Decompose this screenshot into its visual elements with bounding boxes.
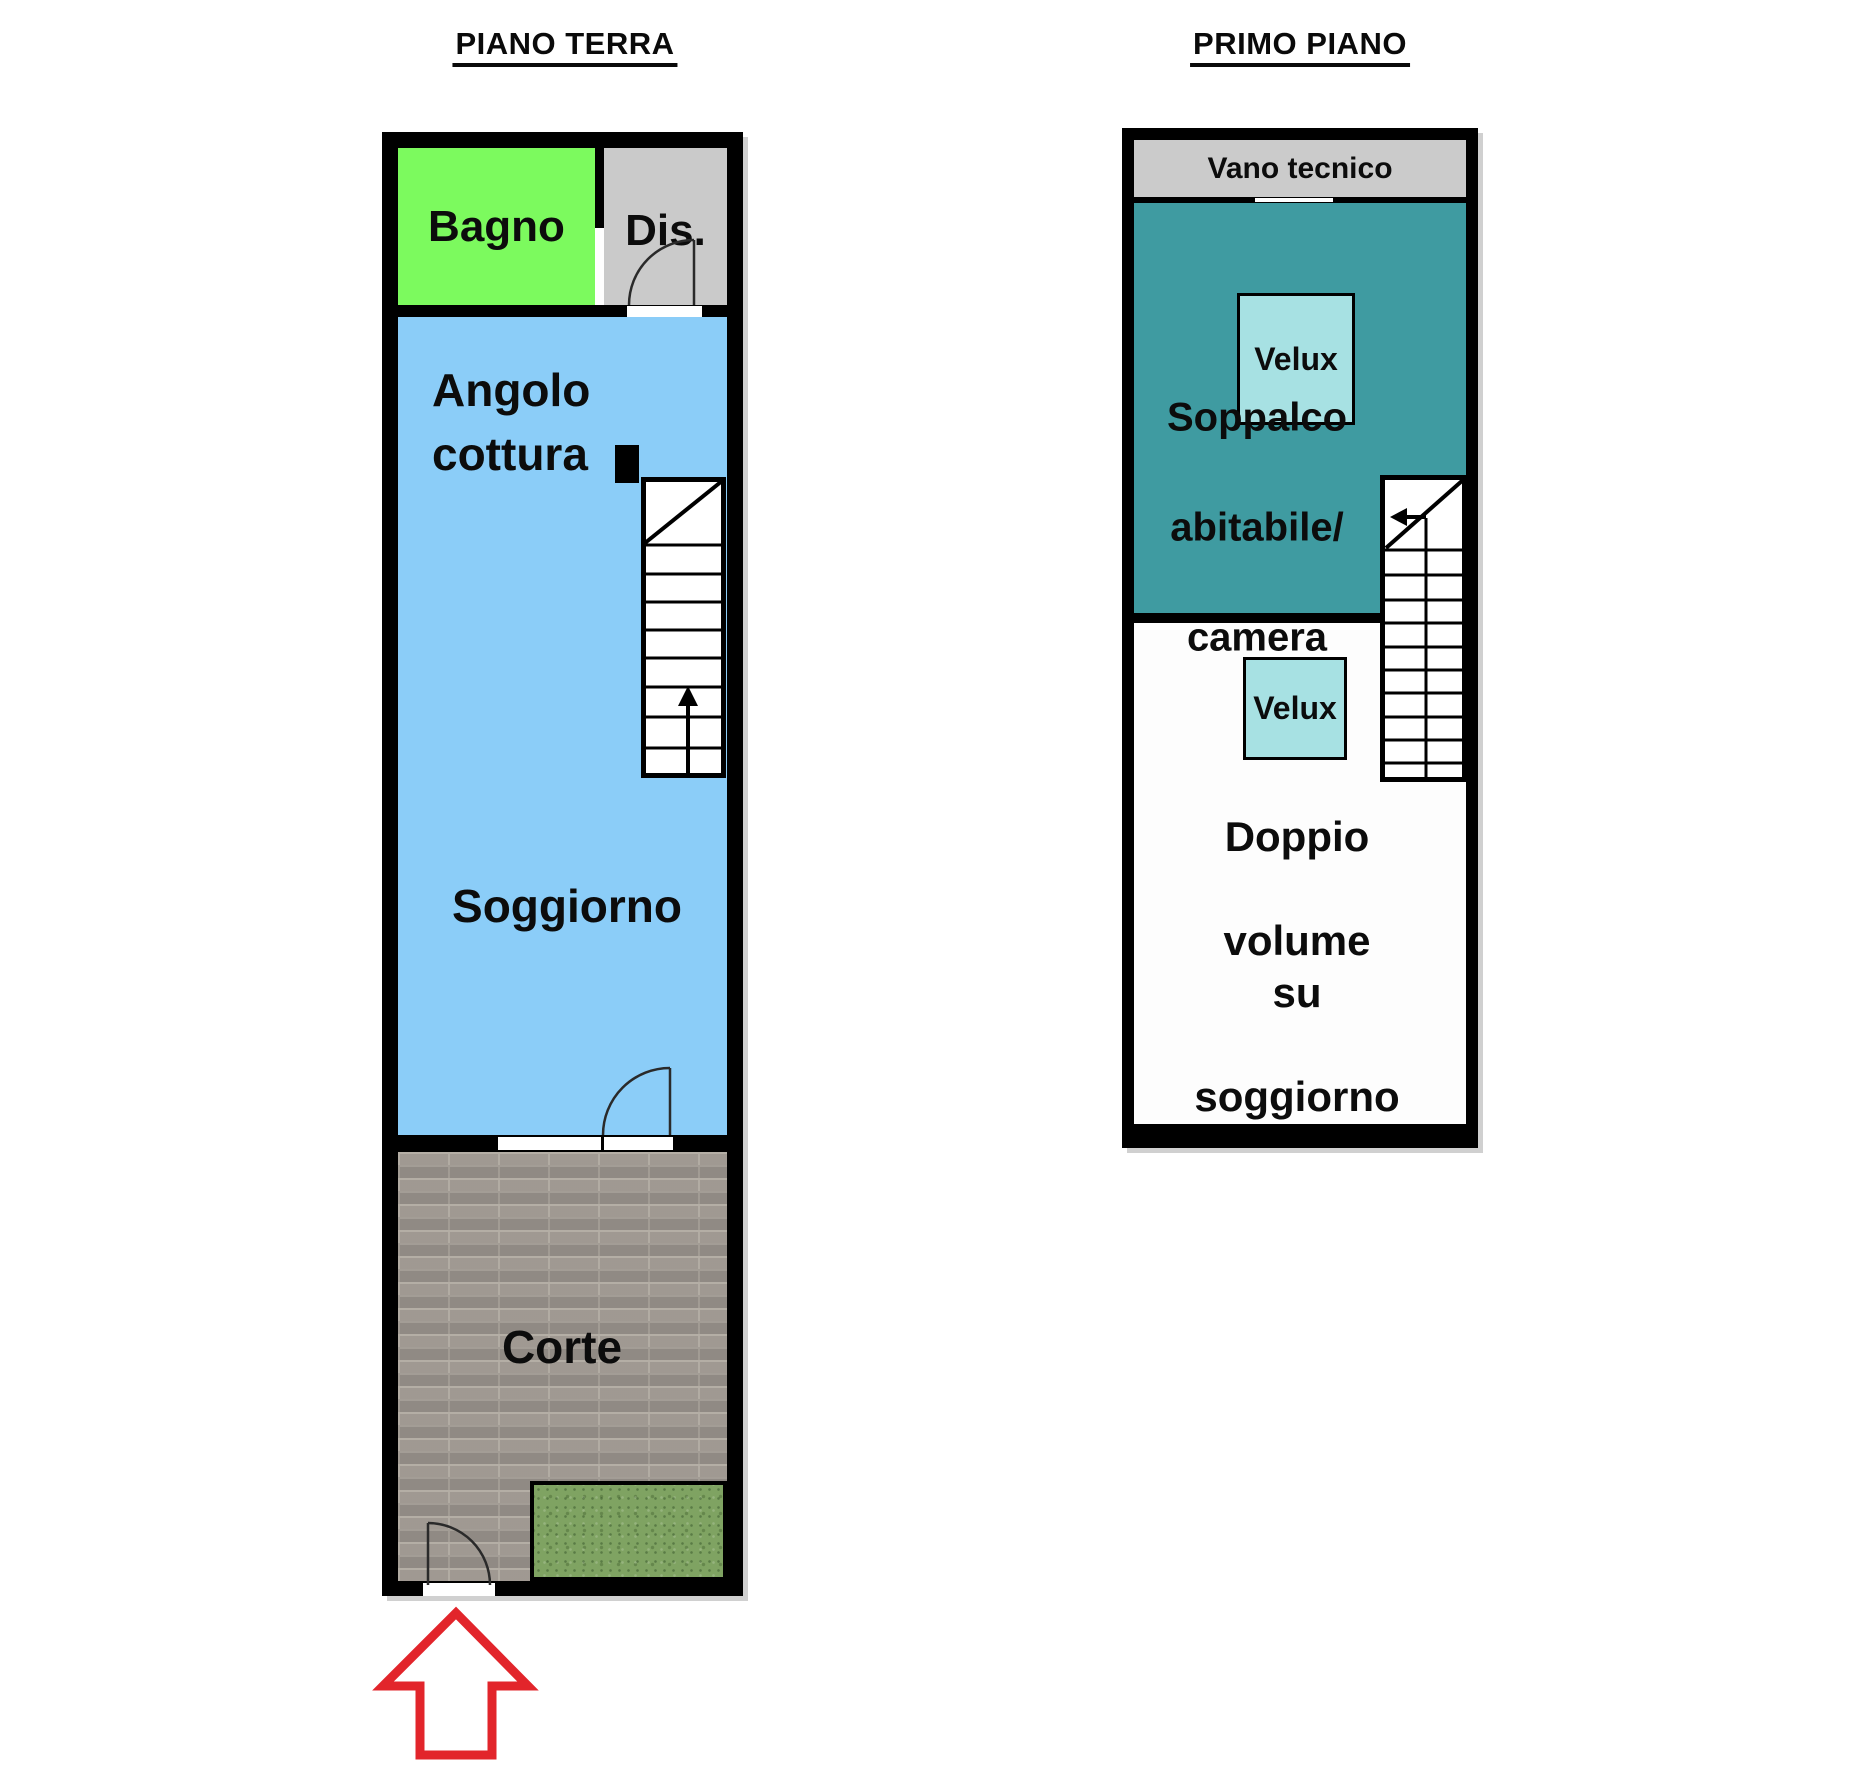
soppalco-line-1: Soppalco [1167, 391, 1347, 446]
plan-symbols-overlay [0, 0, 1869, 1791]
stair-wall-stub [615, 445, 639, 483]
ground-floor-plan: Bagno Dis. Angolo cottura Soggiorno Cort… [382, 132, 743, 1596]
doppio-line-3: soggiorno [1194, 1071, 1399, 1123]
doppio-line-1: Doppio [1194, 811, 1399, 863]
room-dis: Dis. [604, 148, 727, 305]
vano-tecnico-label: Vano tecnico [1207, 152, 1392, 186]
soggiorno-window [498, 1137, 601, 1150]
velux-bottom-window: Velux [1243, 657, 1347, 760]
room-bagno: Bagno [398, 148, 595, 305]
floorplan-canvas: PIANO TERRA PRIMO PIANO Bagno Dis. Angol… [0, 0, 1869, 1791]
bagno-dis-opening [595, 228, 604, 305]
velux-bottom-label: Velux [1253, 690, 1337, 727]
vano-tecnico-opening [1255, 198, 1333, 202]
doppio-line-2: volume su [1194, 915, 1399, 1019]
first-floor-title: PRIMO PIANO [1190, 26, 1410, 67]
first-floor-plan: Vano tecnico Velux Soppalco abitabile/ c… [1122, 128, 1478, 1148]
angolo-cottura-label: Angolo cottura [432, 358, 614, 486]
bagno-label: Bagno [428, 202, 565, 252]
corte-door-threshold [423, 1583, 495, 1596]
soggiorno-door-threshold [604, 1137, 673, 1150]
doppio-volume-label: Doppio volume su soggiorno [1194, 759, 1399, 1175]
room-vano-tecnico: Vano tecnico [1134, 140, 1466, 197]
grass-patch [530, 1481, 727, 1581]
corte-label: Corte [502, 1320, 622, 1374]
ground-floor-title: PIANO TERRA [452, 26, 677, 67]
entrance-arrow-icon [383, 1613, 528, 1755]
dis-label: Dis. [625, 206, 706, 256]
dis-door-threshold [627, 306, 702, 317]
soppalco-line-2: abitabile/ [1167, 501, 1347, 556]
soggiorno-label: Soggiorno [452, 879, 682, 933]
